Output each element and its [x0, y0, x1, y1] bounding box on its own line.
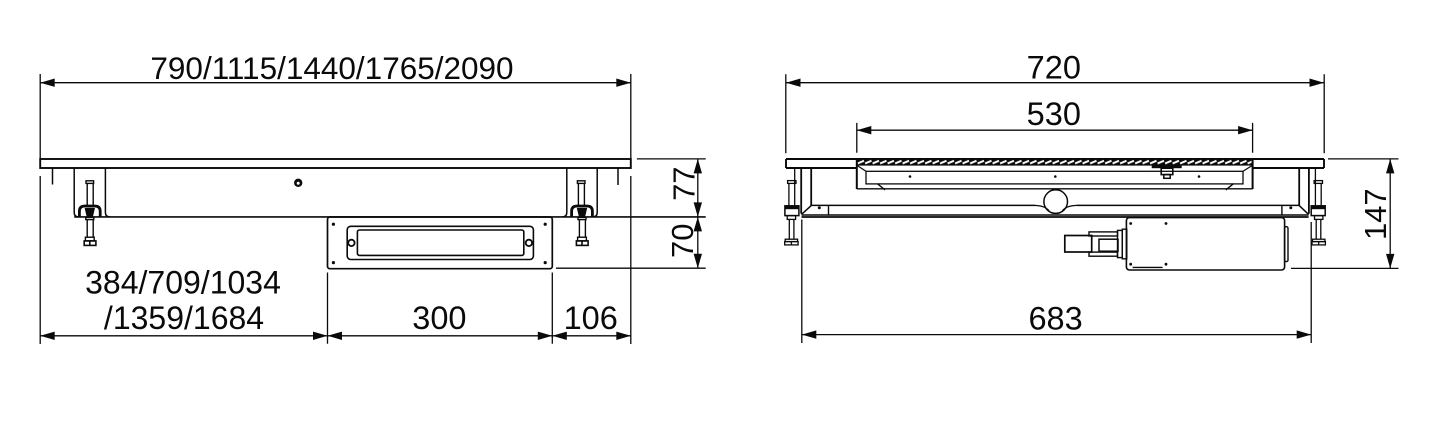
- svg-text:106: 106: [564, 300, 618, 336]
- svg-text:147: 147: [1358, 188, 1393, 240]
- svg-text:77: 77: [666, 166, 701, 200]
- svg-text:300: 300: [412, 300, 466, 336]
- svg-text:530: 530: [1027, 96, 1081, 132]
- svg-text:720: 720: [1027, 50, 1081, 86]
- svg-text:790/1115/1440/1765/2090: 790/1115/1440/1765/2090: [150, 50, 513, 86]
- svg-text:384/709/1034: 384/709/1034: [85, 265, 281, 301]
- svg-text:70: 70: [665, 224, 700, 258]
- svg-text:/1359/1684: /1359/1684: [104, 300, 264, 336]
- svg-text:683: 683: [1028, 300, 1082, 336]
